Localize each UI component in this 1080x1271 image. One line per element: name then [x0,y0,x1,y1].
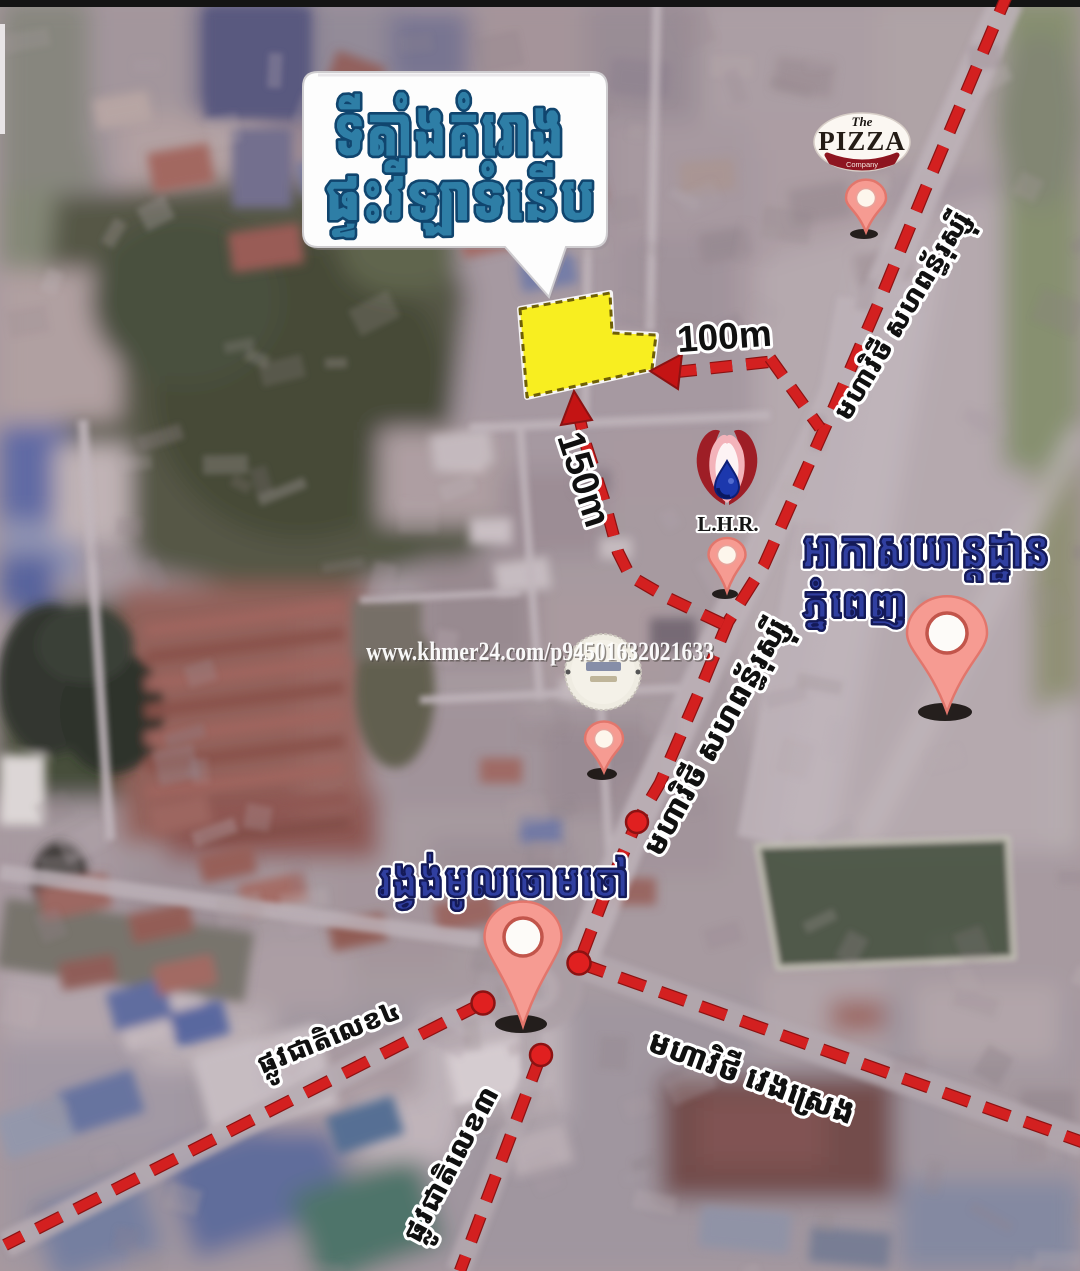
svg-text:100m: 100m [676,313,773,361]
svg-text:Company: Company [846,160,878,169]
svg-text:L.H.R.: L.H.R. [697,512,758,536]
svg-text:PIZZA: PIZZA [818,126,906,156]
svg-text:www.khmer24.com/p9450163202163: www.khmer24.com/p94501632021633 [366,637,714,666]
